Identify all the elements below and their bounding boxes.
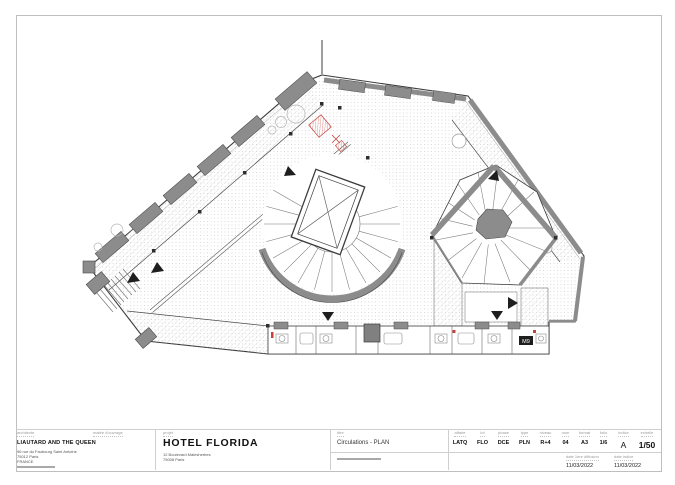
date-first-issue-label: date 1ere diffusion [566,455,599,461]
code-affaire-value: LATQ [453,440,468,446]
code-echelle-label: echelle [641,431,654,437]
code-echelle: echelle 1/50 [634,431,660,450]
code-phase-label: phase [498,431,509,437]
project-name: HOTEL FLORIDA [163,437,258,449]
code-folio-label: folio [600,431,607,437]
date-revision-label: date indice [614,455,633,461]
architect-contact-line [17,466,55,468]
code-affaire-label: affaire [454,431,465,437]
code-phase-value: DCE [498,440,510,446]
code-folio-value: 1/6 [600,440,608,446]
code-indice-value: A [621,440,627,450]
date-first-issue-value: 11/03/2022 [566,463,593,469]
code-lot-value: FLO [477,440,488,446]
code-phase: phase DCE [493,431,514,446]
architect-name: LIAUTARD AND THE QUEEN [17,440,96,446]
client-label: maitre d'ouvrage [93,431,123,437]
drawing-codes: affaire LATQ lot FLO phase DCE type PLN … [448,431,660,450]
code-format-label: format [579,431,590,437]
code-indice: indice A [613,431,634,450]
titleblock-mid-rule [330,452,661,453]
code-type-label: type [521,431,529,437]
code-indice-label: indice [618,431,628,437]
code-type-value: PLN [519,440,530,446]
code-niveau-label: niveau [540,431,552,437]
code-lot-label: lot [480,431,484,437]
code-niveau-value: R+4 [540,440,550,446]
date-revision: date indice 11/03/2022 [614,455,660,469]
code-affaire: affaire LATQ [448,431,472,446]
bottom-strip-rooms: M9 [268,322,549,354]
code-folio: folio 1/6 [594,431,613,446]
room-tag: M9 [519,336,533,345]
drawing-sheet: M9 [0,0,675,485]
date-revision-value: 11/03/2022 [614,463,641,469]
duct-block [364,324,380,342]
code-format-value: A3 [581,440,588,446]
drawing-note-line [337,458,381,460]
code-type: type PLN [514,431,535,446]
spiral-stair [262,154,402,303]
code-echelle-value: 1/50 [639,440,656,450]
date-first-issue: date 1ere diffusion 11/03/2022 [566,455,612,469]
svg-text:M9: M9 [522,339,530,345]
code-num-label: num [562,431,570,437]
code-num-value: 04 [562,440,568,446]
floor-plan: M9 [0,0,675,485]
architect-address-3: FRANCE [17,459,33,464]
titleblock-divider-2 [330,429,331,470]
drawing-title: Circulations - PLAN [337,440,389,446]
titleblock-divider-1 [155,429,156,470]
drawing-title-label: titre [337,431,344,437]
architect-label: architecte [17,431,34,437]
code-format: format A3 [575,431,594,446]
project-address-2: 75008 Paris [163,457,184,462]
code-num: num 04 [556,431,575,446]
code-niveau: niveau R+4 [535,431,556,446]
code-lot: lot FLO [472,431,493,446]
